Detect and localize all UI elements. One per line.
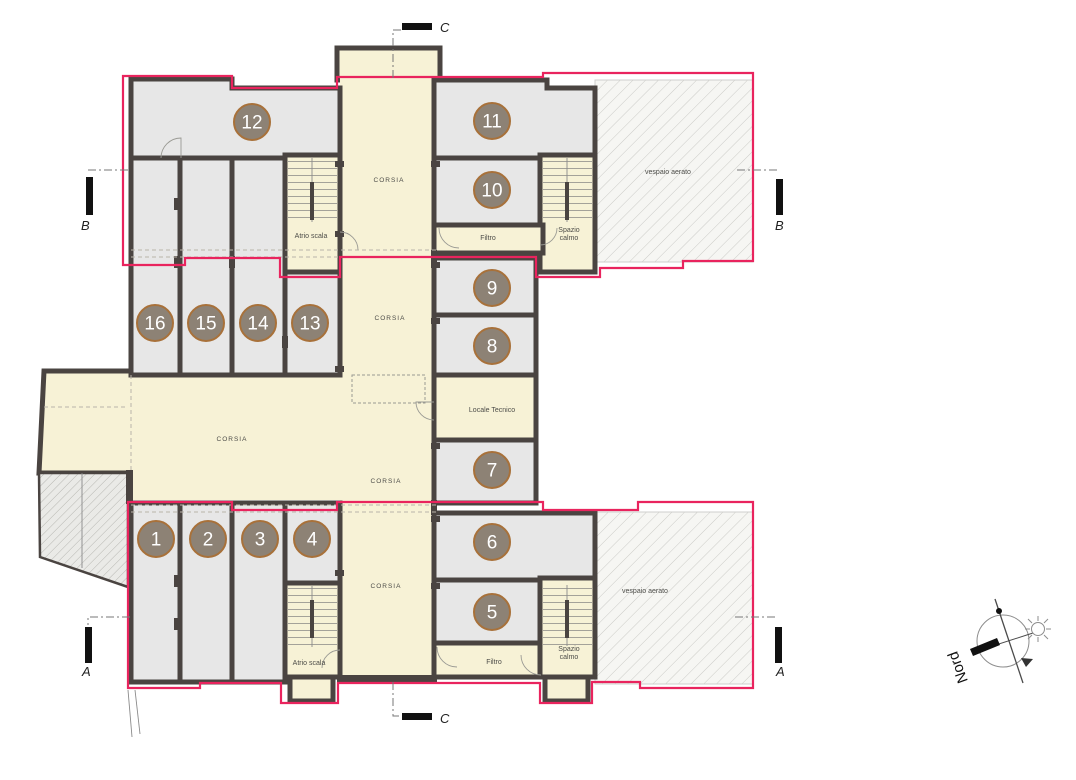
section-letter: A: [775, 664, 785, 679]
room-15-area: [180, 158, 232, 375]
room-16-area: [131, 158, 180, 375]
room-number-8: 8: [487, 337, 498, 358]
room-14-area: [232, 158, 285, 375]
section-letter: A: [81, 664, 91, 679]
corsia-label: CORSIA: [374, 177, 405, 184]
corridor-top-protrusion: [337, 48, 440, 80]
section-letter: B: [775, 218, 784, 233]
spazio-calmo-label: Spaziocalmo: [558, 646, 580, 661]
room-number-13: 13: [299, 314, 320, 335]
vespaio-aerato-label: vespaio aerato: [622, 588, 668, 595]
annex-upper: [39, 371, 134, 473]
room-number-9: 9: [487, 279, 498, 300]
room-number-16: 16: [144, 314, 165, 335]
stair-exit-bottom-right: [545, 677, 588, 701]
filtro-label: Filtro: [480, 235, 496, 242]
spazio-calmo-label: Spaziocalmo: [558, 227, 580, 242]
vespaio-aerato-area-bottom: [595, 512, 753, 684]
room-number-1: 1: [151, 530, 162, 551]
north-compass: Nord: [945, 599, 1051, 685]
floor-plan-drawing: B B A A C C: [0, 0, 1076, 780]
section-letter: C: [440, 711, 450, 726]
compass-arrowhead-icon: [1021, 658, 1033, 667]
room-number-14: 14: [247, 314, 269, 335]
north-needle-icon: [970, 638, 1000, 656]
room-number-7: 7: [487, 461, 498, 482]
atrio-scala-label: Atrio scala: [293, 660, 326, 667]
locale-tecnico-label: Locale Tecnico: [469, 407, 515, 414]
corsia-label: CORSIA: [371, 583, 402, 590]
section-letter: B: [81, 218, 90, 233]
north-label: Nord: [945, 649, 972, 685]
room-6-area: [434, 513, 595, 580]
corsia-label: CORSIA: [217, 436, 248, 443]
compass-dot: [996, 608, 1002, 614]
room-number-10: 10: [481, 181, 502, 202]
room-number-3: 3: [255, 530, 266, 551]
room-number-11: 11: [482, 112, 502, 133]
room-number-6: 6: [487, 533, 498, 554]
corsia-label: CORSIA: [371, 478, 402, 485]
section-marker-c-bottom: C: [393, 682, 450, 726]
annex-hatched: [39, 473, 128, 587]
vespaio-aerato-label: vespaio aerato: [645, 169, 691, 176]
section-letter: C: [440, 20, 450, 35]
room-number-15: 15: [195, 314, 216, 335]
stair-exit-bottom-left: [290, 677, 333, 701]
room-number-4: 4: [307, 530, 318, 551]
floor-plan-canvas: B B A A C C: [0, 0, 1076, 780]
corsia-label: CORSIA: [375, 315, 406, 322]
section-marker-b-left: B: [81, 170, 128, 233]
room-11-area: [434, 80, 595, 158]
room-number-2: 2: [203, 530, 214, 551]
site-lines: [128, 690, 140, 737]
sun-icon: [1025, 616, 1051, 642]
atrio-scala-label: Atrio scala: [295, 233, 328, 240]
room-number-5: 5: [487, 603, 498, 624]
filtro-label: Filtro: [486, 659, 502, 666]
room-number-12: 12: [241, 113, 262, 134]
section-marker-a-left: A: [81, 617, 130, 679]
